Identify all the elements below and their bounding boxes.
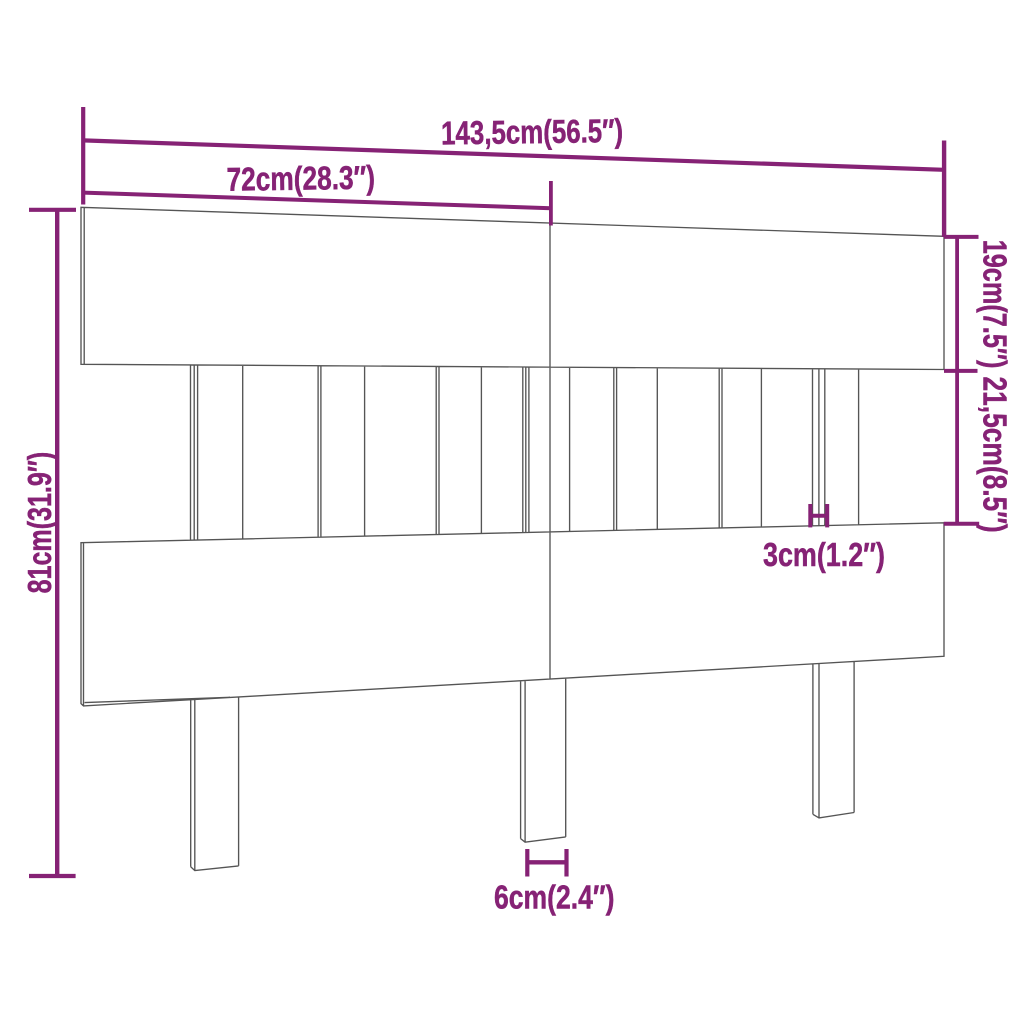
svg-text:3cm(1.2″): 3cm(1.2″) [763, 536, 885, 573]
svg-text:81cm(31.9″): 81cm(31.9″) [21, 452, 58, 594]
svg-text:143,5cm(56.5″): 143,5cm(56.5″) [441, 112, 623, 152]
svg-text:72cm(28.3″): 72cm(28.3″) [226, 159, 375, 198]
svg-text:6cm(2.4″): 6cm(2.4″) [494, 879, 615, 916]
svg-text:19cm(7.5″): 19cm(7.5″) [977, 240, 1014, 369]
svg-text:21,5cm(8.5″): 21,5cm(8.5″) [977, 377, 1014, 533]
